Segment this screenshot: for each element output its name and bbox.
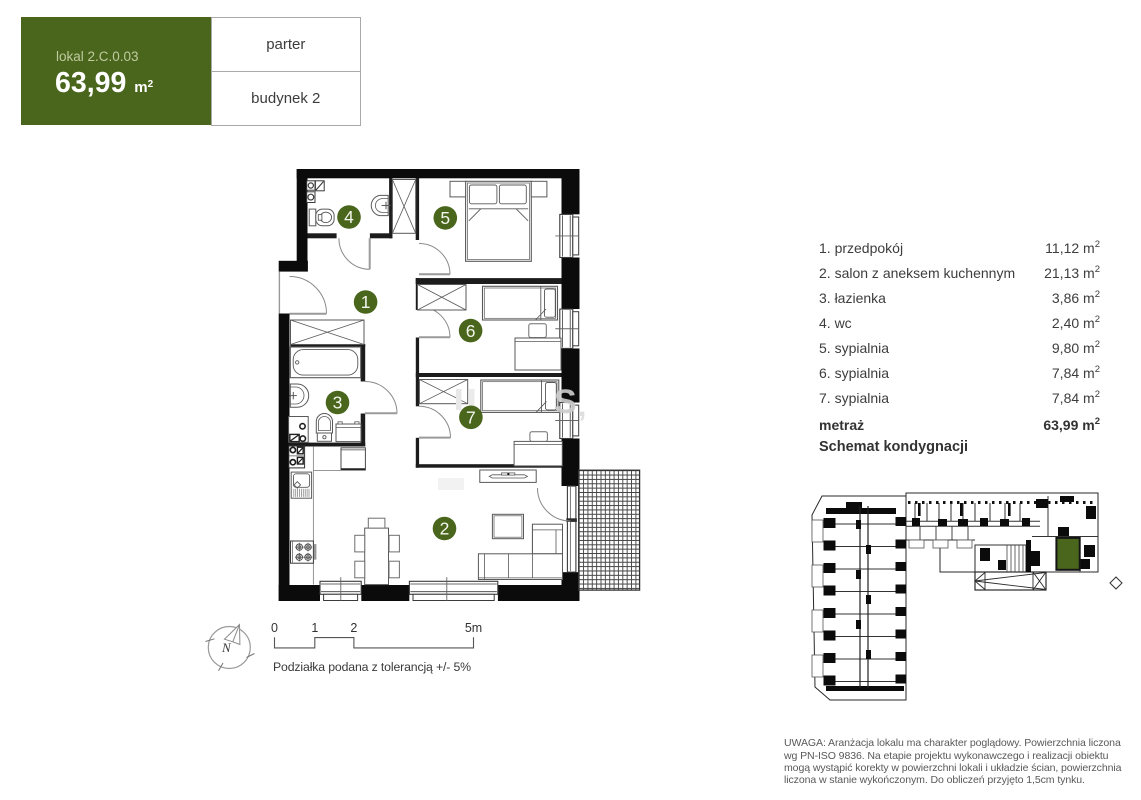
svg-text:S: S [554,383,577,421]
svg-text:5m: 5m [465,621,482,635]
svg-text:Podziałka podana z tolerancją: Podziałka podana z tolerancją +/- 5% [273,660,471,674]
svg-text:6: 6 [466,321,476,341]
svg-text:2: 2 [440,519,450,539]
svg-text:4: 4 [344,207,354,227]
svg-text:1: 1 [361,292,371,312]
svg-text:3: 3 [333,393,343,413]
svg-text:7: 7 [466,408,476,428]
svg-text:5: 5 [440,208,450,228]
svg-text:0: 0 [271,621,278,635]
svg-text:N: N [221,640,232,655]
svg-text:,: , [578,390,586,423]
svg-text:2: 2 [350,621,357,635]
svg-text:1: 1 [311,621,318,635]
